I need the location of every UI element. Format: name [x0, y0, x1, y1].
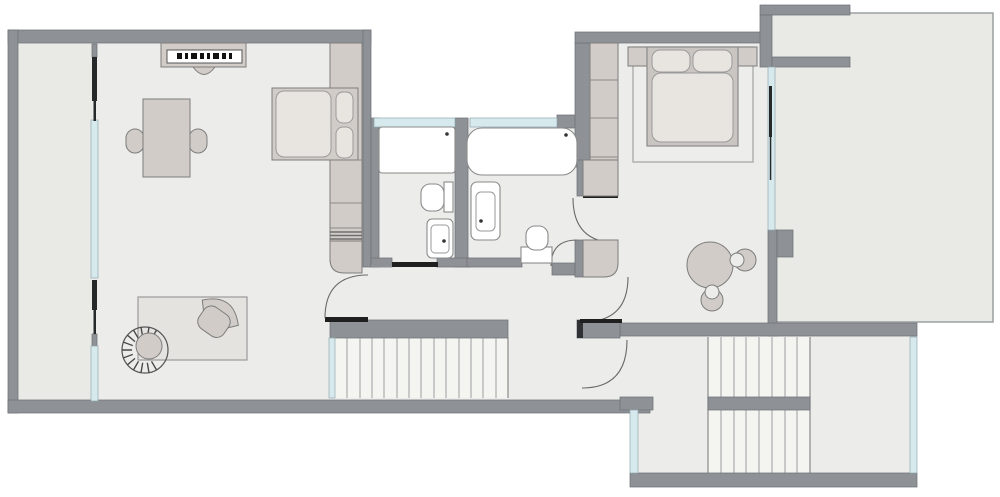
bath-window-left: [374, 118, 455, 127]
balcony-glass-wall-lower: [91, 346, 98, 401]
wall-living-bath: [363, 30, 371, 267]
glass-wall-post-a: [92, 44, 97, 57]
toilet-left-tank: [444, 182, 453, 212]
wall-niche-top: [760, 5, 850, 15]
glass-wall-post-b: [92, 334, 97, 346]
wall-bottom-long: [8, 400, 650, 413]
glass-mullion-3: [92, 280, 97, 310]
slider-left-bath-leaf: [392, 262, 438, 267]
closet-block-lower: [583, 240, 618, 277]
wall-niche-left: [760, 15, 772, 67]
wall-bedroom-bottom: [620, 323, 917, 336]
tub-chair-right-seat: [730, 253, 744, 267]
wall-niche-bottom: [772, 57, 850, 67]
wall-top-left: [8, 30, 371, 43]
wall-window-cap: [557, 115, 577, 128]
dining-table: [143, 99, 190, 177]
slider-left-bath-rail: [371, 265, 392, 267]
wall-stairwell-stub: [620, 397, 653, 410]
walk-in-shower: [379, 127, 455, 173]
washbasin-left-tap: [442, 239, 446, 243]
bed-right-mattress: [652, 73, 733, 142]
wall-bedroom-top: [575, 32, 765, 43]
stairwell-glass-right: [910, 337, 917, 473]
dining-chair-left: [126, 129, 144, 153]
toilet-right-bowl: [526, 226, 548, 250]
wall-bedroom-right: [768, 230, 777, 336]
bed-right-pillow-1: [652, 50, 690, 72]
bath-window-right: [470, 118, 557, 127]
wall-bath-left: [371, 118, 379, 267]
stair-landing-divider: [708, 397, 810, 410]
wall-bath-bottom-b: [437, 258, 470, 267]
fan-chair-seat: [136, 333, 162, 359]
balcony-floor: [10, 40, 92, 401]
wall-bath-bottom-c: [467, 258, 522, 267]
bathtub: [467, 128, 577, 175]
wall-bedroom-left-c: [575, 240, 583, 277]
floor-plan: [0, 0, 1000, 497]
wall-stairwell-bottom: [630, 473, 917, 487]
nightstand-left: [628, 47, 648, 66]
glass-mullion-4: [94, 308, 97, 334]
stair-glass-left: [329, 338, 335, 398]
wall-mid-stairs-top: [330, 320, 508, 338]
nightstand-right: [737, 47, 757, 66]
balcony-glass-wall: [91, 120, 98, 278]
glass-mullion-5: [769, 86, 772, 137]
wall-bath-divider: [455, 118, 468, 267]
door-hall-stairwell-leaf: [580, 319, 622, 323]
bed-left-pillow-2: [336, 127, 353, 158]
door-living-hall-leaf: [325, 317, 368, 322]
wall-left-outer: [8, 30, 18, 413]
wall-bedroom-left-b: [577, 160, 583, 196]
shower-head: [445, 132, 449, 136]
glass-mullion-6: [770, 135, 772, 180]
bed-left-pillow-1: [336, 92, 353, 123]
glass-mullion-2: [94, 99, 97, 121]
wardrobe-end: [330, 241, 362, 273]
dining-chair-right: [189, 129, 207, 153]
wall-bath-bottom-d: [552, 263, 575, 275]
wall-bedroom-right-stub: [777, 230, 793, 257]
closet-block-upper: [583, 160, 618, 196]
glass-mullion-1: [92, 57, 97, 101]
washbasin-right-tap: [479, 219, 483, 223]
bed-right-pillow-2: [693, 50, 732, 72]
toilet-left-bowl: [421, 184, 444, 211]
bed-left-mattress: [276, 91, 331, 157]
bathtub-tap: [564, 133, 568, 137]
tub-chair-bottom-seat: [705, 285, 719, 299]
round-table: [687, 242, 733, 288]
floor-plan-drawing: [0, 0, 1000, 497]
stairwell-glass-left: [630, 410, 638, 473]
